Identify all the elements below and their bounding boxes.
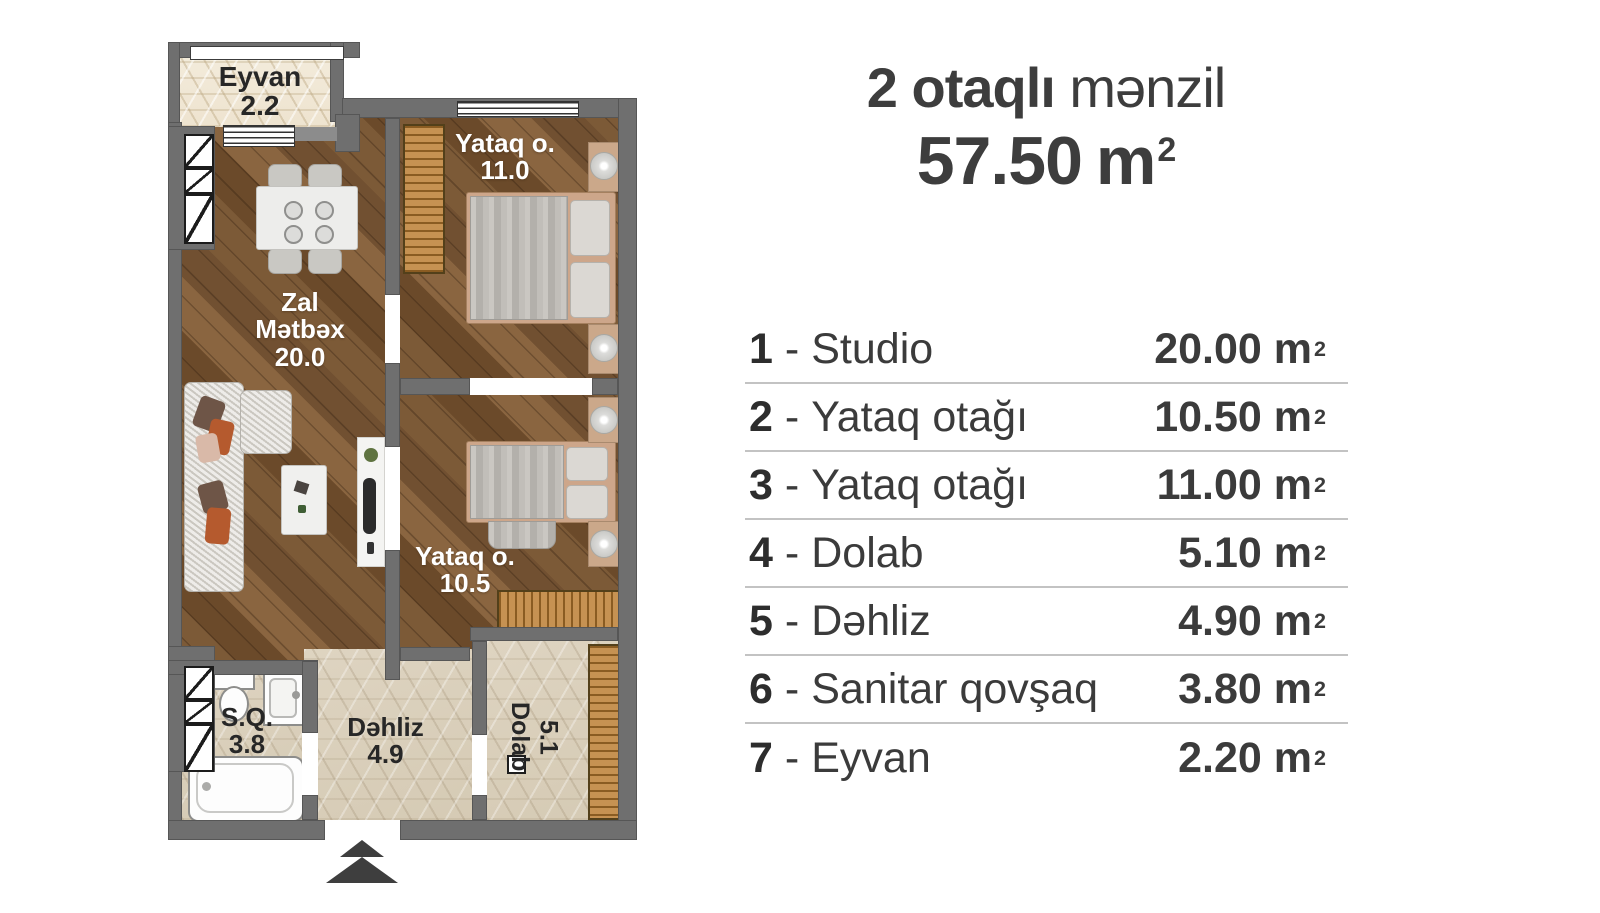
bed-pillow xyxy=(566,485,608,519)
door-opening xyxy=(470,378,592,395)
row-label: Dolab xyxy=(811,529,923,578)
room-label-closet: Dolab 5.1 xyxy=(505,694,563,780)
dining-chair xyxy=(268,248,302,274)
room-area: 4.9 xyxy=(328,741,443,768)
row-area: 4.90 xyxy=(1178,597,1262,646)
room-name: Yataq o. xyxy=(425,130,585,157)
sofa-chaise xyxy=(240,390,292,454)
row-dash: - xyxy=(785,529,799,578)
lamp xyxy=(590,334,618,362)
floor-plan-page: Eyvan 2.2 Zal Mətbəx 20.0 Yataq o. 11.0 … xyxy=(0,0,1600,913)
wall-door-jamb xyxy=(302,795,318,820)
row-area: 20.00 xyxy=(1154,325,1262,374)
wall-door-jamb xyxy=(472,795,487,820)
tv-remote xyxy=(367,542,374,554)
row-unit: m xyxy=(1274,393,1312,442)
room-area: 5.1 xyxy=(534,694,563,780)
legend-row: 6 - Sanitar qovşaq 3.80 m2 xyxy=(745,656,1348,724)
total-area-unit: m xyxy=(1096,123,1155,199)
casement-window-icon xyxy=(184,134,214,168)
wall xyxy=(302,661,318,733)
row-label: Sanitar qovşaq xyxy=(811,665,1098,714)
room-area: 20.0 xyxy=(225,344,375,371)
room-label-balcony: Eyvan 2.2 xyxy=(195,62,325,121)
row-sup: 2 xyxy=(1314,337,1326,362)
door-opening xyxy=(302,733,318,795)
row-sup: 2 xyxy=(1314,677,1326,702)
dining-chair xyxy=(308,248,342,274)
row-number: 5 xyxy=(749,597,773,646)
sofa-pillow xyxy=(204,507,231,545)
row-area: 11.00 xyxy=(1157,461,1262,510)
plate xyxy=(284,201,303,220)
total-area-sup: 2 xyxy=(1157,131,1175,169)
bed-blanket xyxy=(470,445,564,519)
window-balcony xyxy=(223,125,295,147)
row-area: 3.80 xyxy=(1178,665,1262,714)
room-name: Zal xyxy=(225,289,375,316)
room-label-bedroom-2: Yataq o. 10.5 xyxy=(385,543,545,598)
wall xyxy=(385,118,400,295)
wall xyxy=(168,42,180,134)
wall xyxy=(400,820,637,840)
row-dash: - xyxy=(785,393,799,442)
title-line-1: 2 otaqlı mənzil xyxy=(740,56,1352,120)
lamp xyxy=(590,406,618,434)
coffee-table-item xyxy=(298,505,306,513)
legend-row: 5 - Dəhliz 4.90 m2 xyxy=(745,588,1348,656)
row-dash: - xyxy=(785,665,799,714)
wall xyxy=(400,647,470,661)
plate xyxy=(315,201,334,220)
room-label-hallway: Dəhliz 4.9 xyxy=(328,714,443,769)
title-total-area: 57.50m2 xyxy=(740,124,1352,199)
plate xyxy=(315,225,334,244)
casement-window-icon xyxy=(184,666,214,700)
bed-pillow xyxy=(570,262,610,318)
sofa-pillow xyxy=(195,432,222,463)
legend-row: 1 - Studio 20.00 m2 xyxy=(745,316,1348,384)
row-dash: - xyxy=(785,597,799,646)
tv xyxy=(363,478,376,534)
row-number: 6 xyxy=(749,665,773,714)
row-unit: m xyxy=(1274,665,1312,714)
row-label: Yataq otağı xyxy=(811,461,1028,510)
row-label: Yataq otağı xyxy=(811,393,1028,442)
door-opening xyxy=(385,447,400,550)
lamp xyxy=(590,530,618,558)
row-sup: 2 xyxy=(1314,746,1326,771)
wall xyxy=(592,378,618,395)
row-sup: 2 xyxy=(1314,473,1326,498)
row-dash: - xyxy=(785,325,799,374)
row-label: Studio xyxy=(811,325,933,374)
row-sup: 2 xyxy=(1314,609,1326,634)
row-unit: m xyxy=(1274,734,1312,783)
total-area-value: 57.50 xyxy=(917,123,1082,199)
row-unit: m xyxy=(1274,597,1312,646)
bed-blanket xyxy=(470,196,568,320)
room-legend: 1 - Studio 20.00 m2 2 - Yataq otağı 10.5… xyxy=(745,316,1348,792)
room-label-living: Zal Mətbəx 20.0 xyxy=(225,289,375,371)
wall xyxy=(293,127,337,141)
room-name: S.Q. xyxy=(202,704,292,731)
row-label: Eyvan xyxy=(811,734,931,783)
wall xyxy=(400,378,470,395)
row-area: 10.50 xyxy=(1154,393,1262,442)
wall xyxy=(472,641,487,735)
row-number: 3 xyxy=(749,461,773,510)
row-sup: 2 xyxy=(1314,405,1326,430)
page-title: 2 otaqlı mənzil 57.50m2 xyxy=(740,56,1352,199)
wall xyxy=(618,98,637,840)
room-label-bedroom-1: Yataq o. 11.0 xyxy=(425,130,585,185)
legend-row: 3 - Yataq otağı 11.00 m2 xyxy=(745,452,1348,520)
room-name: Eyvan xyxy=(195,62,325,91)
legend-row: 2 - Yataq otağı 10.50 m2 xyxy=(745,384,1348,452)
title-word: mənzil xyxy=(1069,56,1225,119)
bed-pillow xyxy=(566,447,608,481)
casement-window-icon xyxy=(184,168,214,194)
casement-window-icon xyxy=(184,194,214,244)
row-dash: - xyxy=(785,461,799,510)
room-name: Dəhliz xyxy=(328,714,443,741)
door-opening xyxy=(472,735,487,795)
legend-row: 4 - Dolab 5.10 m2 xyxy=(745,520,1348,588)
entrance-arrow-icon xyxy=(340,840,384,857)
row-unit: m xyxy=(1274,529,1312,578)
room-area: 10.5 xyxy=(385,570,545,597)
row-number: 2 xyxy=(749,393,773,442)
lamp xyxy=(590,152,618,180)
wall xyxy=(168,820,325,840)
bed-pillow xyxy=(570,200,610,256)
row-sup: 2 xyxy=(1314,541,1326,566)
row-unit: m xyxy=(1274,461,1312,510)
wall xyxy=(470,627,618,641)
room-name: Yataq o. xyxy=(385,543,545,570)
row-number: 7 xyxy=(749,734,773,783)
wall xyxy=(385,363,400,447)
room-area: 2.2 xyxy=(195,91,325,120)
coffee-table xyxy=(281,465,327,535)
room-area: 11.0 xyxy=(425,157,585,184)
row-number: 4 xyxy=(749,529,773,578)
room-name: Mətbəx xyxy=(225,316,375,343)
row-number: 1 xyxy=(749,325,773,374)
wardrobe-closet xyxy=(588,644,620,820)
room-area: 3.8 xyxy=(202,731,292,758)
row-label: Dəhliz xyxy=(811,597,931,646)
window-balcony-top xyxy=(190,46,344,60)
row-area: 5.10 xyxy=(1178,529,1262,578)
room-label-bathroom: S.Q. 3.8 xyxy=(202,704,292,759)
row-area: 2.20 xyxy=(1178,734,1262,783)
title-room-count: 2 otaqlı xyxy=(867,56,1055,119)
wall xyxy=(335,114,360,152)
row-dash: - xyxy=(785,734,799,783)
dining-table xyxy=(256,186,358,250)
door-opening xyxy=(385,295,400,363)
plate xyxy=(284,225,303,244)
plant xyxy=(364,448,378,462)
row-unit: m xyxy=(1274,325,1312,374)
legend-row: 7 - Eyvan 2.20 m2 xyxy=(745,724,1348,792)
room-name: Dolab xyxy=(505,694,534,780)
bathtub-drain xyxy=(202,782,211,791)
entrance-arrow-icon xyxy=(326,857,398,883)
faucet xyxy=(292,691,300,699)
window-bedroom-1 xyxy=(457,101,579,117)
